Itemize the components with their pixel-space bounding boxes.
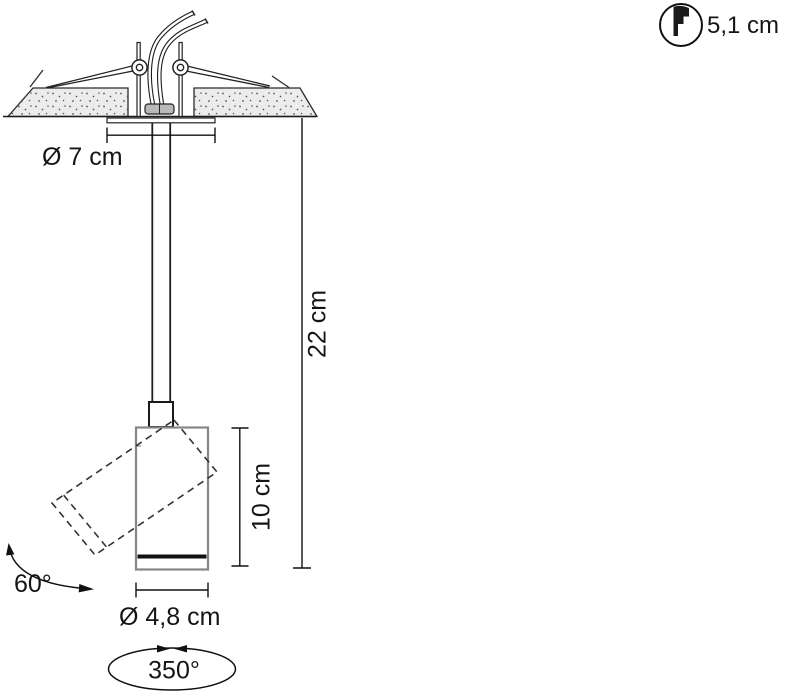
spotlight-technical-drawing: Ø 7 cm 22 cm 10 cm Ø 4,8 cm 60° 350° 5,1… [0, 0, 795, 697]
break-mark-left [30, 70, 43, 87]
recess-depth-icon [660, 4, 702, 46]
rotation-range-label: 350° [148, 657, 200, 685]
break-mark-right [272, 76, 289, 88]
trim-ring [107, 118, 215, 123]
overall-height-label: 22 cm [304, 290, 332, 358]
rotation-arrow-right [157, 645, 170, 653]
drawing-linework [0, 0, 795, 697]
tilt-range-label: 60° [14, 571, 52, 599]
rotation-arrow-left [174, 645, 187, 653]
recess-depth-label: 5,1 cm [707, 13, 779, 39]
tilt-arrow-up [6, 543, 14, 556]
tilt-arrow-right [79, 584, 94, 592]
cutout-diameter-label: Ø 7 cm [42, 144, 123, 172]
body-diameter-label: Ø 4,8 cm [119, 604, 220, 632]
dimension-body-height [232, 428, 249, 566]
stem [152, 123, 170, 402]
dimension-body-diameter [136, 583, 208, 598]
dimension-cutout-diameter [107, 128, 215, 144]
body-height-label: 10 cm [248, 463, 276, 531]
